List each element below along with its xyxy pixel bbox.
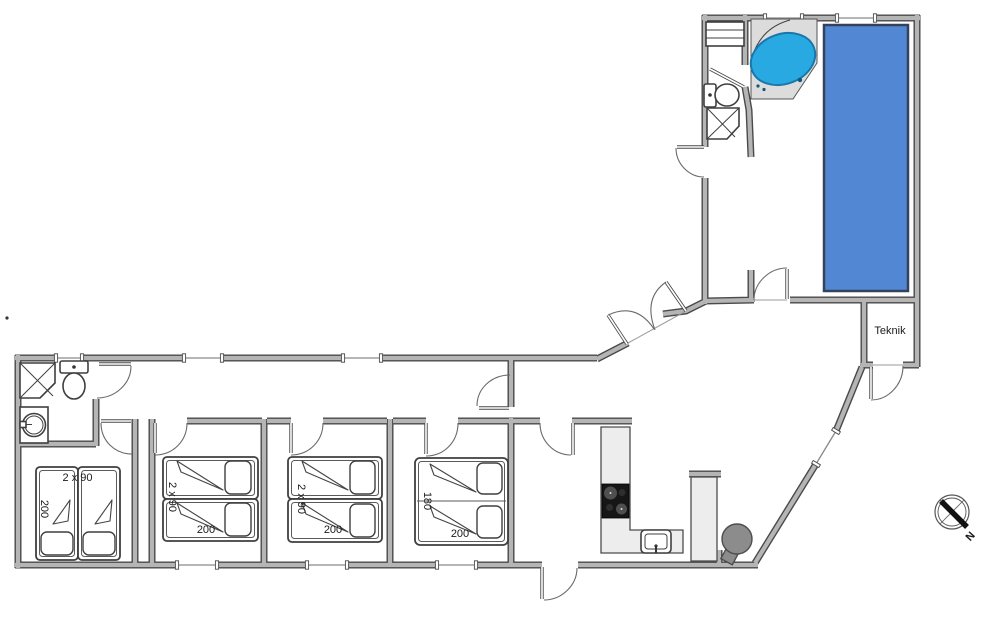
bed-size-label: 180 bbox=[421, 492, 433, 510]
bed-size-label: 2 x 90 bbox=[63, 472, 93, 484]
main-bathroom bbox=[20, 361, 88, 443]
shelf-unit bbox=[706, 22, 744, 46]
cooktop bbox=[602, 484, 629, 518]
pool-room bbox=[704, 19, 908, 291]
teknik-room-label: Teknik bbox=[874, 325, 906, 337]
compass-north-label: N bbox=[964, 530, 978, 544]
bedroom-3: 2 x 90 200 bbox=[288, 457, 382, 542]
hot-tub bbox=[743, 19, 822, 99]
plan-dot bbox=[5, 316, 8, 319]
swimming-pool bbox=[824, 25, 908, 291]
tall-cabinet bbox=[691, 477, 717, 561]
compass-rose: N bbox=[935, 495, 978, 544]
kitchen-sink bbox=[641, 530, 671, 553]
bed-length-label: 200 bbox=[197, 524, 215, 536]
bedroom-2: 2 x 90 200 bbox=[163, 457, 258, 541]
bedroom-1: 2 x 90 200 bbox=[36, 467, 120, 560]
bed-size-label: 2 x 90 bbox=[295, 484, 307, 514]
sink bbox=[20, 407, 48, 443]
toilet bbox=[60, 361, 88, 399]
shower bbox=[707, 108, 739, 139]
bed-length-label: 200 bbox=[451, 528, 469, 540]
floor-plan: Teknik 2 x 90 200 bbox=[0, 0, 1000, 624]
bed-size-label: 2 x 90 bbox=[166, 482, 178, 512]
bed-length-label: 200 bbox=[324, 524, 342, 536]
kitchen bbox=[601, 427, 752, 565]
pool-bathroom bbox=[704, 22, 744, 139]
teknik-room: Teknik bbox=[874, 325, 906, 337]
bed-length-label: 200 bbox=[38, 500, 50, 518]
bedroom-4: 180 200 bbox=[415, 458, 508, 545]
wood-stove bbox=[721, 524, 752, 565]
floor-plan-page: Teknik 2 x 90 200 bbox=[0, 0, 1000, 624]
shower bbox=[20, 363, 55, 398]
toilet bbox=[704, 84, 739, 107]
